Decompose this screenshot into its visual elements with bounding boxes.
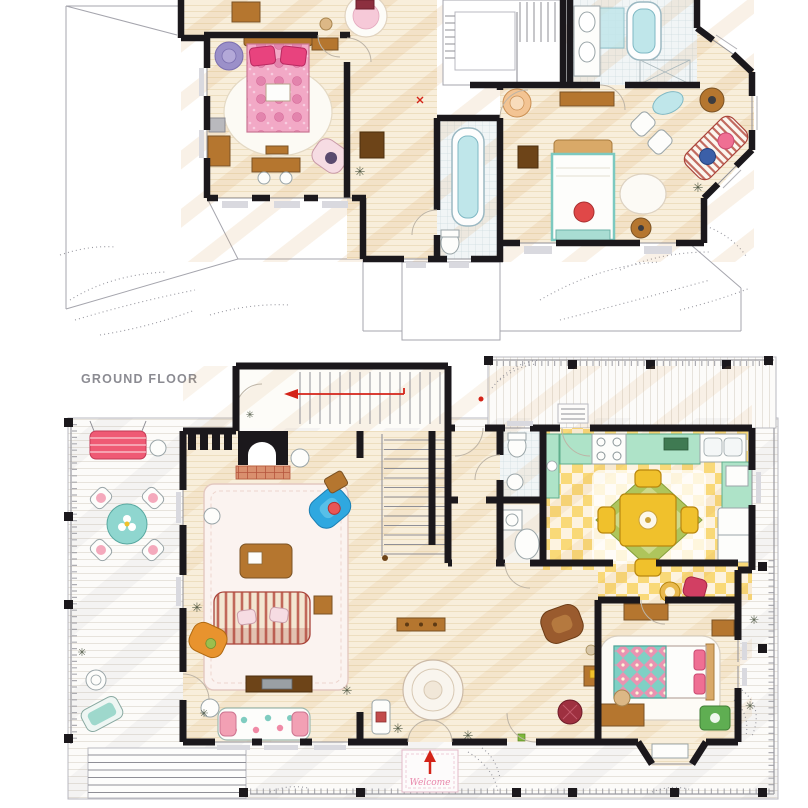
oval-rug	[620, 174, 666, 214]
chair	[598, 507, 615, 533]
hearth	[236, 466, 290, 479]
striped-sofa	[214, 592, 310, 644]
pillow	[280, 46, 307, 67]
radiator	[524, 246, 552, 254]
footboard	[556, 230, 610, 240]
pillow	[694, 650, 705, 670]
bench	[266, 146, 288, 154]
plant-icon: ✳	[393, 721, 404, 736]
plant-icon: ✳	[192, 600, 203, 615]
ground-floor-plan: GROUND FLOOR	[64, 356, 778, 799]
dresser	[312, 38, 338, 50]
console	[232, 2, 260, 22]
window-seat	[652, 744, 688, 758]
sink	[579, 12, 595, 32]
breakfast-tray	[266, 84, 290, 101]
side-table	[314, 596, 332, 614]
plant-icon: ✳	[77, 647, 86, 659]
desk	[252, 158, 300, 172]
pillow	[249, 45, 276, 66]
pillow	[237, 609, 257, 625]
bed	[552, 154, 614, 240]
plant-stand	[204, 508, 220, 524]
hall-cabinet	[360, 132, 384, 158]
cushion	[220, 712, 236, 736]
pillow	[694, 674, 705, 694]
utility-sink	[515, 529, 539, 559]
headboard	[706, 644, 714, 700]
nightstand	[518, 146, 538, 168]
pedestal-sink	[507, 474, 523, 490]
ground-floor-label: GROUND FLOOR	[81, 372, 198, 386]
chair	[635, 470, 661, 487]
lamp	[638, 225, 644, 231]
cushion	[292, 712, 308, 736]
newel-post	[382, 555, 388, 561]
porch-steps	[88, 748, 246, 798]
stool	[320, 18, 332, 30]
plant-icon: ✳	[199, 708, 208, 720]
plant-icon: ✳	[342, 683, 353, 698]
tv	[262, 679, 292, 689]
floorplan-canvas: ✳	[0, 0, 808, 808]
red-pillow	[574, 202, 594, 222]
plant-icon: ✳	[693, 180, 704, 195]
stove	[592, 434, 626, 464]
chair	[681, 507, 698, 533]
pillow	[269, 607, 289, 623]
sink	[579, 42, 595, 62]
floral-loveseat	[218, 708, 310, 740]
desk-chair	[614, 690, 630, 706]
dishwasher	[726, 466, 748, 486]
welcome-mat-text: Welcome	[409, 778, 450, 788]
floorplan-poster: ✳	[0, 0, 808, 808]
washer	[502, 510, 522, 530]
round-table	[86, 670, 106, 690]
shower-tile	[600, 8, 624, 48]
desk	[600, 704, 644, 726]
plant-icon: ✳	[246, 410, 254, 421]
microwave	[664, 438, 688, 450]
nightstand	[712, 620, 734, 636]
radiator	[644, 246, 672, 254]
hamper	[209, 118, 225, 132]
fireplace	[236, 431, 290, 479]
dormer	[402, 262, 500, 340]
desk-chair	[280, 172, 292, 184]
side-table	[150, 440, 166, 456]
lamp	[708, 96, 716, 104]
plant-icon: ✳	[749, 613, 759, 627]
plant-icon: ✳	[355, 164, 366, 179]
dresser	[560, 92, 614, 106]
red-marker-icon	[479, 397, 484, 402]
vanity	[208, 136, 230, 166]
plant-ic on: ✳	[745, 699, 755, 713]
welcome-mat: Welcome	[402, 750, 458, 792]
upper-stairwell	[443, 0, 563, 85]
dresser	[624, 604, 668, 620]
ottoman	[356, 0, 374, 9]
round-mirror	[291, 449, 309, 467]
desk-chair	[258, 172, 270, 184]
